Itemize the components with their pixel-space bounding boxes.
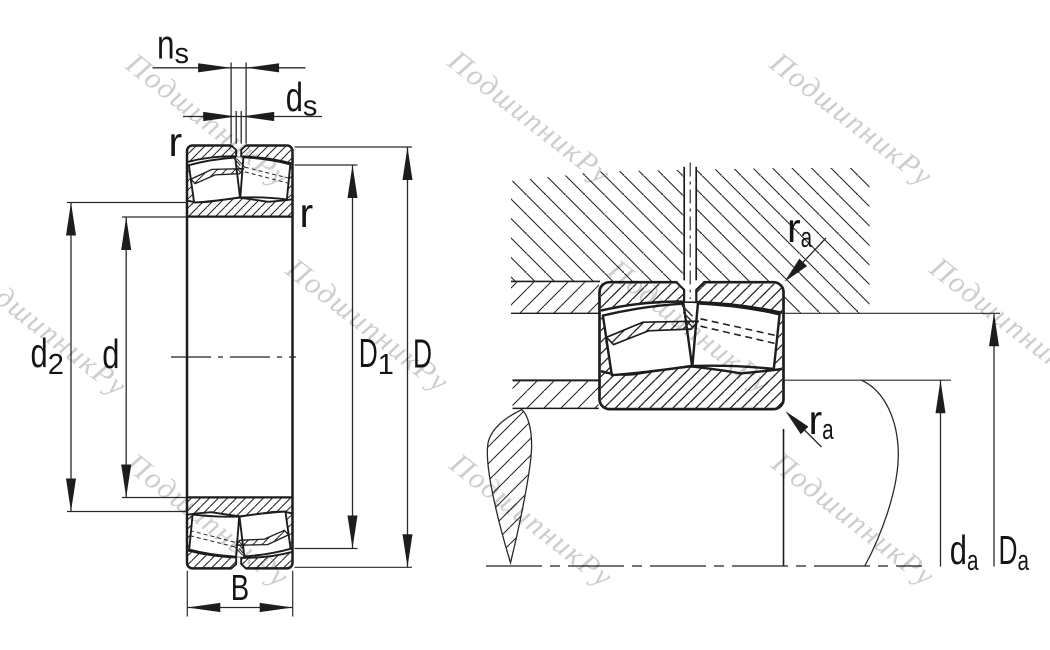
svg-text:B: B bbox=[231, 567, 249, 608]
svg-text:r: r bbox=[300, 190, 314, 236]
svg-text:r: r bbox=[169, 119, 183, 165]
